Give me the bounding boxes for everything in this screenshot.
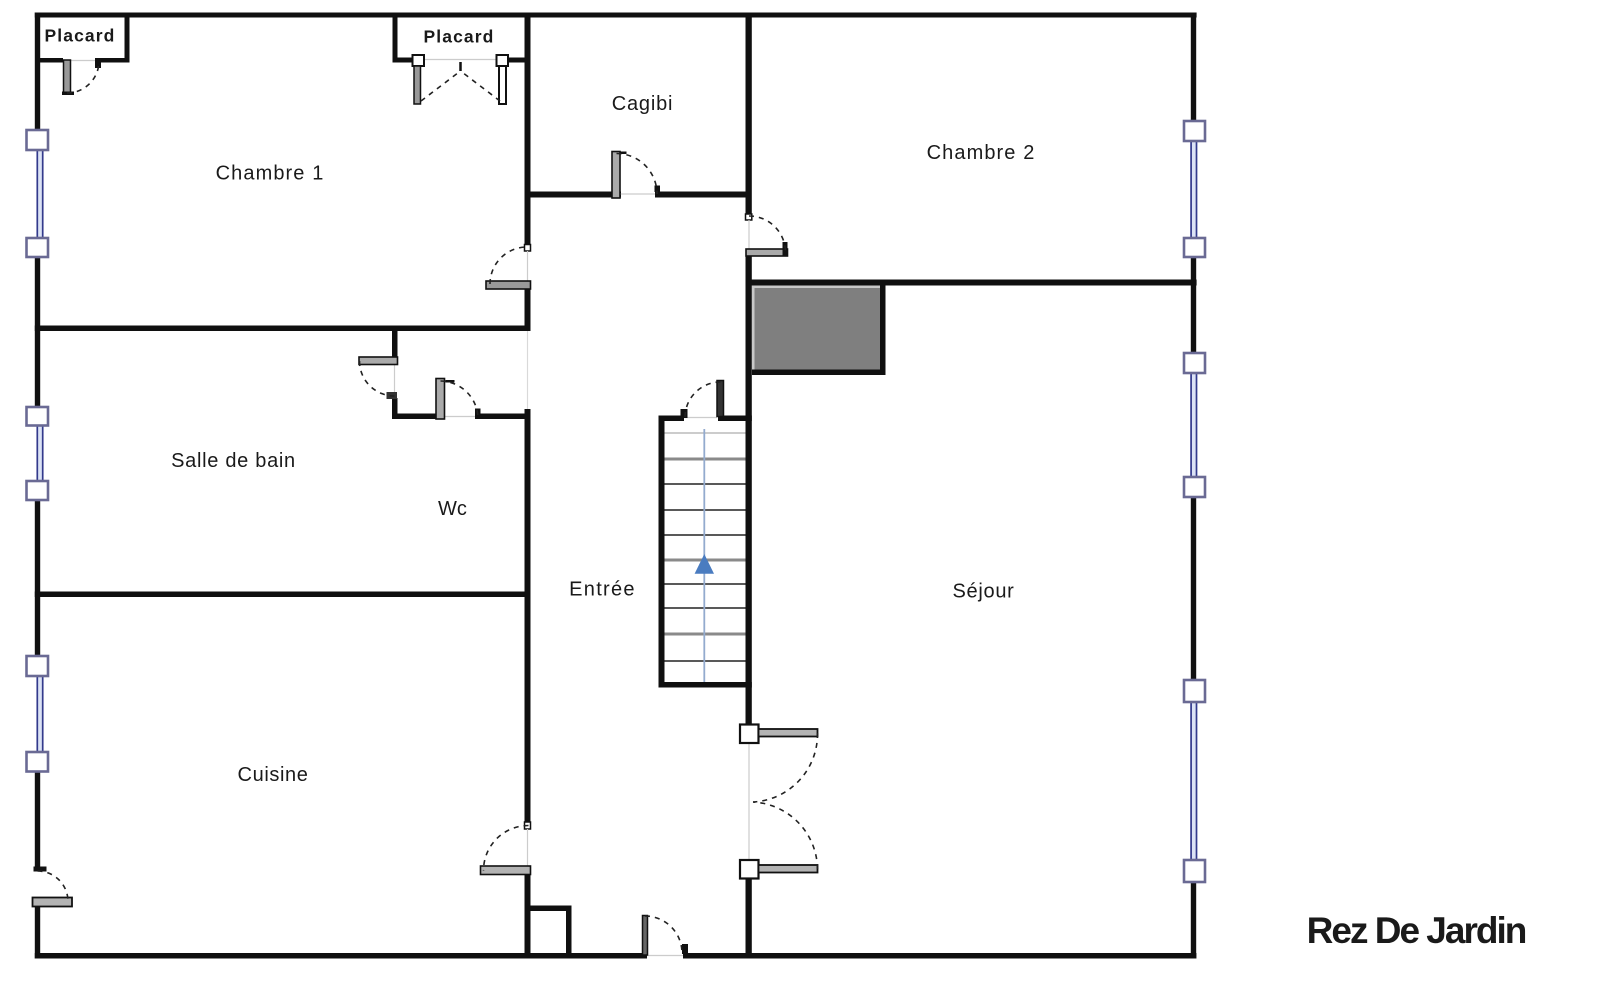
- svg-text:Wc: Wc: [438, 498, 467, 520]
- svg-text:Placard: Placard: [424, 27, 495, 47]
- svg-text:Cuisine: Cuisine: [238, 764, 309, 786]
- svg-text:Chambre 2: Chambre 2: [927, 142, 1036, 164]
- svg-text:Chambre 1: Chambre 1: [216, 163, 325, 185]
- svg-text:Rez De Jardin: Rez De Jardin: [1307, 910, 1526, 951]
- svg-text:Séjour: Séjour: [952, 581, 1014, 603]
- svg-text:Placard: Placard: [45, 26, 116, 46]
- svg-text:Cagibi: Cagibi: [612, 93, 674, 115]
- svg-text:Entrée: Entrée: [569, 579, 636, 601]
- svg-text:Salle de bain: Salle de bain: [171, 450, 296, 472]
